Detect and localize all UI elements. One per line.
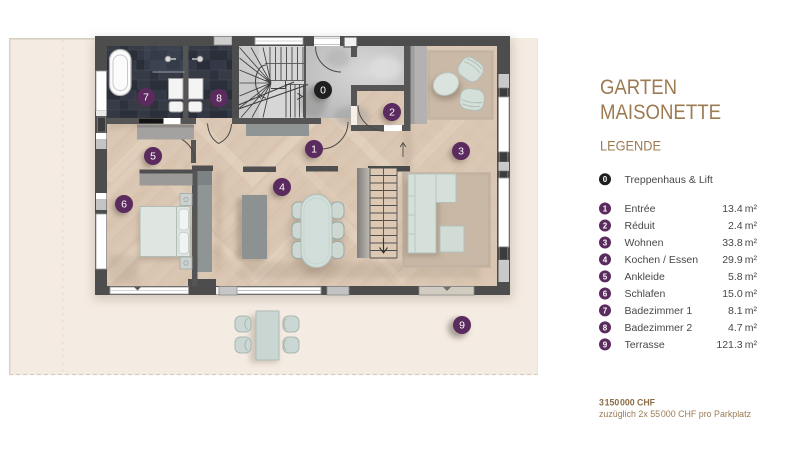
svg-text:15.0 m²: 15.0 m² xyxy=(722,288,757,300)
svg-text:Entrée: Entrée xyxy=(625,203,656,215)
svg-text:6: 6 xyxy=(121,199,127,211)
svg-text:8.1 m²: 8.1 m² xyxy=(728,305,757,317)
svg-text:5.8 m²: 5.8 m² xyxy=(728,271,757,283)
svg-text:0: 0 xyxy=(603,175,608,184)
svg-text:Treppenhaus & Lift: Treppenhaus & Lift xyxy=(625,174,713,186)
svg-text:8: 8 xyxy=(603,323,608,332)
svg-text:MAISONETTE: MAISONETTE xyxy=(600,101,721,124)
svg-text:Schlafen: Schlafen xyxy=(625,288,666,300)
svg-text:2.4 m²: 2.4 m² xyxy=(728,220,757,232)
svg-text:121.3 m²: 121.3 m² xyxy=(716,339,757,351)
svg-text:1: 1 xyxy=(311,144,317,156)
svg-text:6: 6 xyxy=(603,290,608,299)
svg-text:4: 4 xyxy=(603,255,608,264)
svg-text:Terrasse: Terrasse xyxy=(625,339,665,351)
svg-text:2: 2 xyxy=(603,222,608,231)
svg-text:7: 7 xyxy=(603,306,608,315)
svg-text:3: 3 xyxy=(603,239,608,248)
svg-text:Réduit: Réduit xyxy=(625,220,655,232)
svg-text:Ankleide: Ankleide xyxy=(625,271,665,283)
svg-text:13.4 m²: 13.4 m² xyxy=(722,203,757,215)
svg-text:33.8 m²: 33.8 m² xyxy=(722,237,757,249)
svg-text:Badezimmer 2: Badezimmer 2 xyxy=(625,322,693,334)
svg-text:2: 2 xyxy=(389,107,395,119)
svg-text:0: 0 xyxy=(320,85,326,97)
svg-text:29.9 m²: 29.9 m² xyxy=(722,254,757,266)
svg-text:9: 9 xyxy=(459,320,465,332)
svg-text:Wohnen: Wohnen xyxy=(625,237,664,249)
svg-text:zuzüglich 2x 55 000 CHF pro Pa: zuzüglich 2x 55 000 CHF pro Parkplatz xyxy=(599,409,751,420)
svg-text:4.7 m²: 4.7 m² xyxy=(728,322,757,334)
svg-text:9: 9 xyxy=(603,340,608,349)
svg-text:8: 8 xyxy=(216,93,222,105)
svg-text:LEGENDE: LEGENDE xyxy=(600,138,661,154)
svg-text:5: 5 xyxy=(150,151,156,163)
svg-text:4: 4 xyxy=(279,182,285,194)
svg-text:Kochen / Essen: Kochen / Essen xyxy=(625,254,699,266)
svg-text:1: 1 xyxy=(603,205,608,214)
svg-text:3 150 000 CHF: 3 150 000 CHF xyxy=(599,398,655,409)
svg-text:Badezimmer 1: Badezimmer 1 xyxy=(625,305,693,317)
svg-text:7: 7 xyxy=(143,92,149,104)
svg-text:GARTEN: GARTEN xyxy=(600,76,677,99)
svg-text:3: 3 xyxy=(458,146,464,158)
svg-text:5: 5 xyxy=(603,272,608,281)
